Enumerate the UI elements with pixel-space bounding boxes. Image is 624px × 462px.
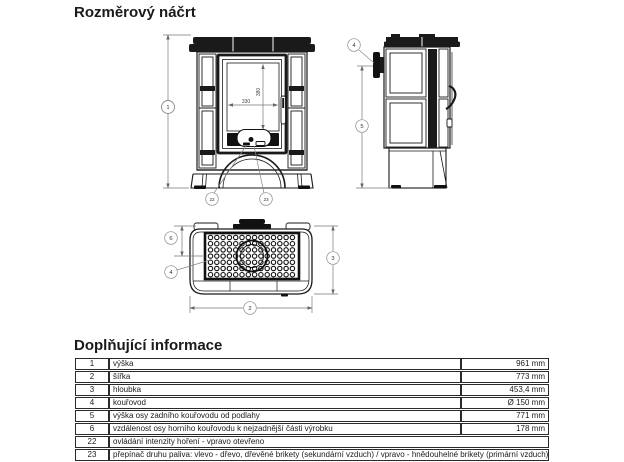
side-top-plate xyxy=(384,34,460,47)
row-number: 3 xyxy=(75,384,109,396)
glass-height-label: 380 xyxy=(256,88,262,97)
intensity-lever xyxy=(256,142,265,146)
dimensional-drawing: 330 380 xyxy=(0,0,624,340)
glass-width-label: 330 xyxy=(242,99,251,105)
table-row: 23 přepínač druhu paliva: vlevo - dřevo,… xyxy=(75,449,549,461)
callout-6: 6 xyxy=(169,236,172,242)
front-door-handle xyxy=(281,96,286,124)
table-row: 3 hloubka 453,4 mm xyxy=(75,384,549,396)
table-row: 2 šířka 773 mm xyxy=(75,371,549,383)
additional-info-table: 1 výška 961 mm 2 šířka 773 mm 3 hloubka … xyxy=(75,357,549,462)
side-flue-collar xyxy=(373,52,384,78)
row-description: ovládání intenzity hoření - vpravo otevř… xyxy=(109,436,549,448)
row-number: 1 xyxy=(75,358,109,370)
row-value: 771 mm xyxy=(461,410,549,422)
callout-23: 23 xyxy=(263,197,269,202)
row-description: šířka xyxy=(109,371,461,383)
row-description: přepínač druhu paliva: vlevo - dřevo, dř… xyxy=(109,449,549,461)
dim-depth: 3 xyxy=(314,226,339,294)
dim-height: 1 xyxy=(162,35,192,188)
callout-1: 1 xyxy=(166,105,169,111)
callout-5: 5 xyxy=(360,124,363,130)
table-row: 22 ovládání intenzity hoření - vpravo ot… xyxy=(75,436,549,448)
row-number: 4 xyxy=(75,397,109,409)
top-view: 6 4 3 2 xyxy=(165,219,340,314)
row-value: 773 mm xyxy=(461,371,549,383)
front-top-plate xyxy=(189,37,315,52)
info-section-title: Doplňující informace xyxy=(74,337,222,354)
row-description: vzdálenost osy horního kouřovodu k nejza… xyxy=(109,423,461,435)
side-body xyxy=(384,47,450,148)
callout-2: 2 xyxy=(248,306,251,312)
fuel-switch-lever xyxy=(249,137,254,142)
row-value: Ø 150 mm xyxy=(461,397,549,409)
row-number: 5 xyxy=(75,410,109,422)
table-row: 6 vzdálenost osy horního kouřovodu k nej… xyxy=(75,423,549,435)
top-flue-tab xyxy=(233,219,271,229)
side-view: 4 5 xyxy=(348,34,460,189)
top-grille xyxy=(205,233,299,279)
row-number: 6 xyxy=(75,423,109,435)
row-value: 961 mm xyxy=(461,358,549,370)
table-row: 5 výška osy zadního kouřovodu od podlahy… xyxy=(75,410,549,422)
row-number: 2 xyxy=(75,371,109,383)
front-view: 330 380 xyxy=(162,35,316,205)
row-number: 23 xyxy=(75,449,109,461)
table-row: 1 výška 961 mm xyxy=(75,358,549,370)
callout-3: 3 xyxy=(331,256,334,262)
row-description: hloubka xyxy=(109,384,461,396)
row-number: 22 xyxy=(75,436,109,448)
dim-width: 2 xyxy=(190,296,312,314)
row-value: 453,4 mm xyxy=(461,384,549,396)
row-description: výška osy zadního kouřovodu od podlahy xyxy=(109,410,461,422)
row-value: 178 mm xyxy=(461,423,549,435)
table-row: 4 kouřovod Ø 150 mm xyxy=(75,397,549,409)
side-callout-flue: 4 xyxy=(348,39,374,63)
row-description: výška xyxy=(109,358,461,370)
callout-22: 22 xyxy=(209,197,215,202)
side-base xyxy=(389,148,447,189)
row-description: kouřovod xyxy=(109,397,461,409)
